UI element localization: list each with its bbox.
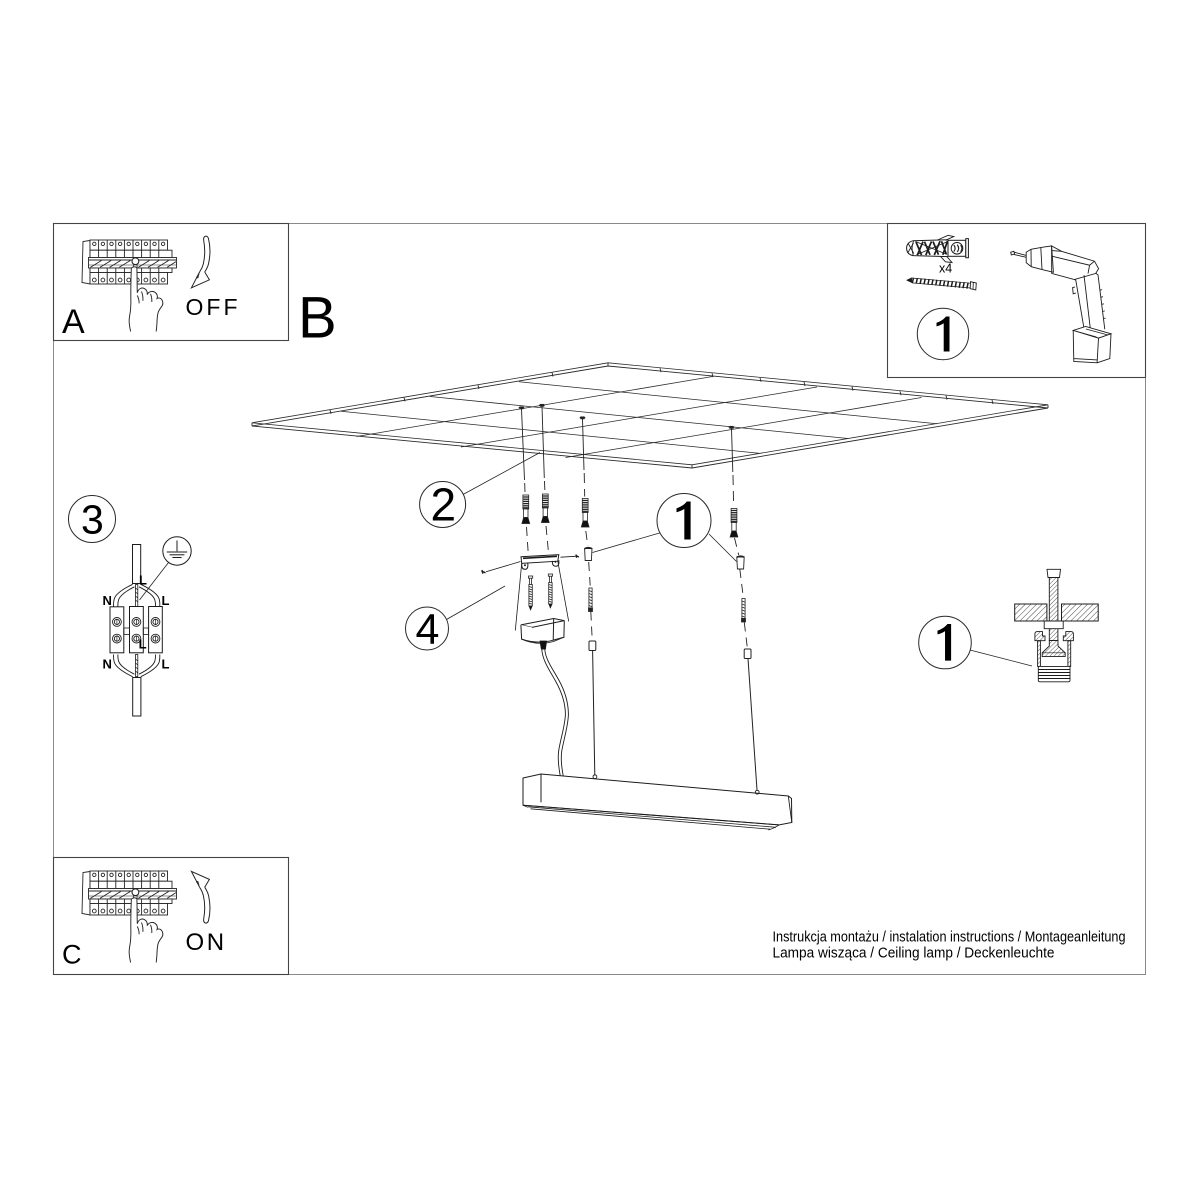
svg-text:OFF: OFF: [186, 294, 241, 320]
svg-text:B: B: [298, 286, 337, 351]
svg-text:N: N: [103, 593, 112, 608]
svg-text:2: 2: [431, 479, 457, 531]
svg-text:ON: ON: [186, 929, 227, 956]
svg-text:4: 4: [416, 606, 440, 654]
svg-text:N: N: [103, 657, 112, 672]
svg-text:C: C: [62, 940, 82, 970]
svg-text:L: L: [139, 637, 147, 652]
svg-text:A: A: [62, 303, 85, 341]
svg-text:Lampa wisząca / Ceiling lamp /: Lampa wisząca / Ceiling lamp / Deckenleu…: [773, 945, 1055, 962]
svg-text:L: L: [139, 573, 147, 588]
svg-text:x4: x4: [939, 262, 952, 276]
svg-text:L: L: [162, 657, 170, 672]
svg-text:3: 3: [81, 497, 104, 543]
svg-text:L: L: [162, 593, 170, 608]
svg-text:Instrukcja montażu / instalati: Instrukcja montażu / instalation instruc…: [773, 929, 1126, 946]
